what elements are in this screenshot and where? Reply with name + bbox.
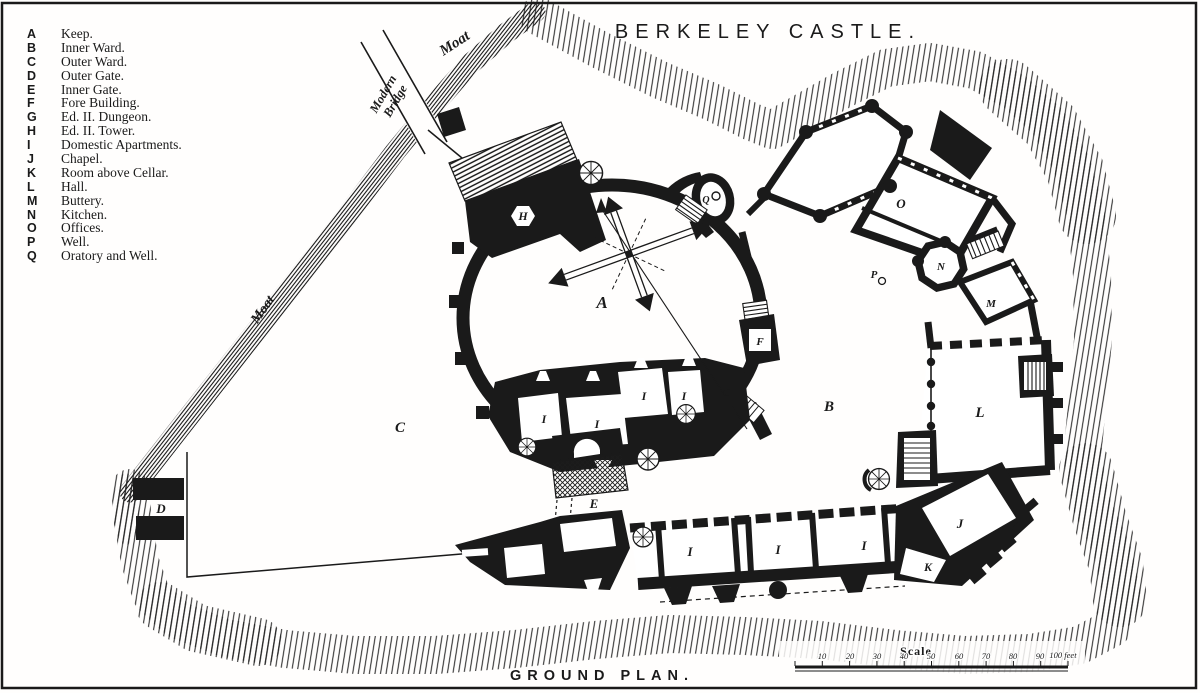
scale-tick: 90 <box>1036 651 1045 661</box>
marker-dungeon-g: G <box>723 387 731 399</box>
legend-key: H <box>24 125 61 139</box>
scale-bar: Scale 10 20 30 40 50 60 70 80 90 100 fee… <box>779 641 1085 675</box>
marker-well-p: P <box>871 269 878 281</box>
legend-key: K <box>24 167 61 181</box>
legend-label: Kitchen. <box>61 207 107 222</box>
legend-key: F <box>24 97 61 111</box>
legend-row: COuter Ward. <box>24 55 182 69</box>
legend-label: Well. <box>61 234 90 249</box>
marker-offices-o: O <box>896 196 906 211</box>
legend-row: JChapel. <box>24 152 182 166</box>
marker-chapel-j: J <box>956 516 964 531</box>
legend-key: J <box>24 153 61 167</box>
marker-outer-gate-d: D <box>155 501 166 516</box>
legend-label: Domestic Apartments. <box>61 137 182 152</box>
legend-row: HEd. II. Tower. <box>24 124 182 138</box>
legend-label: Keep. <box>61 26 93 41</box>
legend-label: Chapel. <box>61 151 103 166</box>
legend-label: Room above Cellar. <box>61 165 169 180</box>
scale-tick: 30 <box>872 651 882 661</box>
stair-turret <box>865 469 890 490</box>
legend-row: DOuter Gate. <box>24 69 182 83</box>
marker-cellar-room-k: K <box>923 560 933 574</box>
legend-label: Outer Gate. <box>61 68 124 83</box>
legend-label: Offices. <box>61 220 104 235</box>
legend-label: Hall. <box>61 179 88 194</box>
legend-key: N <box>24 209 61 223</box>
marker-inner-ward-b: B <box>823 399 834 415</box>
legend-label: Ed. II. Tower. <box>61 123 135 138</box>
legend-label: Fore Building. <box>61 95 140 110</box>
legend-key: B <box>24 42 61 56</box>
legend-key: C <box>24 56 61 70</box>
marker-tower-h: H <box>517 209 528 223</box>
marker-buttery-m: M <box>985 298 997 310</box>
page-title: BERKELEY CASTLE. <box>615 21 921 43</box>
legend-row: FFore Building. <box>24 96 182 110</box>
legend-key: E <box>24 84 61 98</box>
legend-row: BInner Ward. <box>24 41 182 55</box>
legend-row: IDomestic Apartments. <box>24 138 182 152</box>
legend-row: AKeep. <box>24 27 182 41</box>
legend-label: Ed. II. Dungeon. <box>61 109 151 124</box>
marker-hall-l: L <box>974 405 984 421</box>
legend-key: I <box>24 139 61 153</box>
legend-key: M <box>24 195 61 209</box>
marker-apartments-i: I <box>774 542 781 557</box>
legend-label: Inner Gate. <box>61 82 122 97</box>
legend-label: Inner Ward. <box>61 40 125 55</box>
legend-row: OOffices. <box>24 221 182 235</box>
engraving-page: AKeep. BInner Ward. COuter Ward. DOuter … <box>0 0 1200 693</box>
legend-key: P <box>24 236 61 250</box>
plan-caption: GROUND PLAN. <box>510 668 694 684</box>
legend-label: Outer Ward. <box>61 54 127 69</box>
legend-row: EInner Gate. <box>24 83 182 97</box>
scale-tick: 60 <box>955 651 964 661</box>
legend-row: KRoom above Cellar. <box>24 166 182 180</box>
marker-apartments-i: I <box>860 538 867 553</box>
marker-keep-a: A <box>595 293 607 312</box>
legend: AKeep. BInner Ward. COuter Ward. DOuter … <box>24 27 182 263</box>
legend-row: QOratory and Well. <box>24 249 182 263</box>
scale-tick: 80 <box>1009 651 1018 661</box>
scale-tick: 50 <box>927 651 936 661</box>
marker-kitchen-n: N <box>936 261 946 273</box>
legend-key: O <box>24 222 61 236</box>
legend-row: GEd. II. Dungeon. <box>24 110 182 124</box>
legend-key: Q <box>24 250 61 264</box>
marker-fore-building-f: F <box>755 336 764 348</box>
legend-label: Buttery. <box>61 193 104 208</box>
scale-tick: 40 <box>900 651 909 661</box>
legend-key: G <box>24 111 61 125</box>
legend-key: A <box>24 28 61 42</box>
legend-label: Oratory and Well. <box>61 248 158 263</box>
legend-key: L <box>24 181 61 195</box>
legend-row: PWell. <box>24 235 182 249</box>
legend-row: NKitchen. <box>24 208 182 222</box>
scale-tick: 70 <box>982 651 991 661</box>
marker-apartments-i: I <box>686 544 693 559</box>
legend-key: D <box>24 70 61 84</box>
scale-tick: 10 <box>818 651 827 661</box>
scale-tick: 20 <box>846 651 855 661</box>
scale-end-label: 100 feet <box>1049 650 1077 660</box>
legend-row: LHall. <box>24 180 182 194</box>
marker-inner-gate-e: E <box>589 496 599 511</box>
marker-oratory-q: Q <box>702 195 709 206</box>
marker-outer-ward-c: C <box>395 420 406 436</box>
legend-row: MButtery. <box>24 194 182 208</box>
